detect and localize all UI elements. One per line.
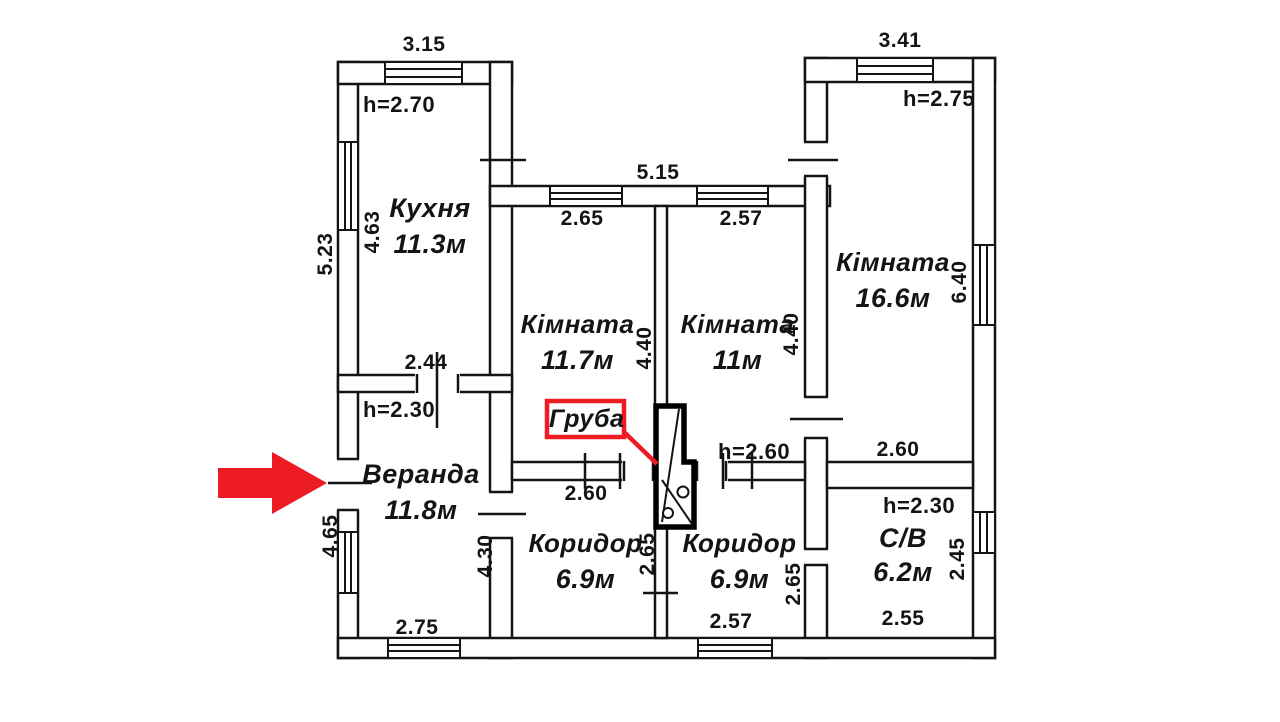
window-roomb-top [697, 186, 768, 206]
window-kitchen-top [385, 62, 462, 84]
dim-bathroom-side: 2.45 [946, 524, 970, 594]
entrance-arrow [218, 452, 327, 514]
window-corridorb-bottom [698, 638, 772, 658]
height-bathroom: h=2.30 [883, 494, 993, 518]
dim-corridora-side: 2.65 [636, 519, 660, 589]
stove-symbol [656, 406, 694, 527]
area-label-roomc: 16.6м [818, 286, 968, 310]
dim-roomc-bottom: 2.60 [863, 438, 933, 462]
dim-roomb-side: 4.40 [780, 299, 804, 369]
dim-veranda-bottom: 2.75 [382, 616, 452, 640]
window-roomc-right [973, 245, 995, 325]
height-kitchen: h=2.70 [363, 93, 473, 117]
dim-left-outer: 5.23 [314, 219, 338, 289]
dim-corridora-top: 2.60 [551, 482, 621, 506]
dim-kitchen-top: 3.15 [389, 33, 459, 57]
area-label-rooma: 11.7м [500, 348, 655, 372]
door-roomb-roomc [803, 397, 829, 438]
stove-label: Груба [549, 404, 622, 434]
window-roomc-top [857, 58, 933, 82]
dim-bathroom-bottom: 2.55 [868, 607, 938, 631]
window-veranda-bottom [388, 638, 460, 658]
dim-corridorb-bottom: 2.57 [696, 610, 766, 634]
area-label-veranda: 11.8м [346, 498, 496, 522]
dim-corridorb-side: 2.65 [782, 549, 806, 619]
dim-roomc-top: 3.41 [865, 29, 935, 53]
stove-callout-line [621, 429, 657, 464]
room-label-rooma: Кімната [500, 312, 655, 336]
dim-rooma-top: 2.65 [547, 207, 617, 231]
room-label-roomc: Кімната [818, 250, 968, 274]
dim-veranda-left: 4.65 [319, 501, 343, 571]
wall-roomc-bathroom [827, 462, 973, 488]
dim-veranda-right: 4.30 [474, 521, 498, 591]
height-roomc: h=2.75 [903, 87, 1013, 111]
dim-roomb-top: 2.57 [706, 207, 776, 231]
dim-rooma-side: 4.40 [633, 313, 657, 383]
door-corridora-rooma [622, 460, 655, 482]
wall-middle-top [490, 186, 830, 206]
window-rooma-top [550, 186, 622, 206]
height-corridorb: h=2.60 [718, 440, 828, 464]
dim-roomc-side: 6.40 [948, 247, 972, 317]
floor-plan-page: 3.15 h=2.70 Кухня 11.3м 5.15 2.65 2.57 К… [0, 0, 1280, 722]
room-label-veranda: Веранда [346, 462, 496, 486]
dim-middle-top: 5.15 [623, 161, 693, 185]
dim-veranda-top: 2.44 [391, 351, 461, 375]
height-veranda: h=2.30 [363, 398, 473, 422]
dim-kitchen-left: 4.63 [361, 197, 385, 267]
